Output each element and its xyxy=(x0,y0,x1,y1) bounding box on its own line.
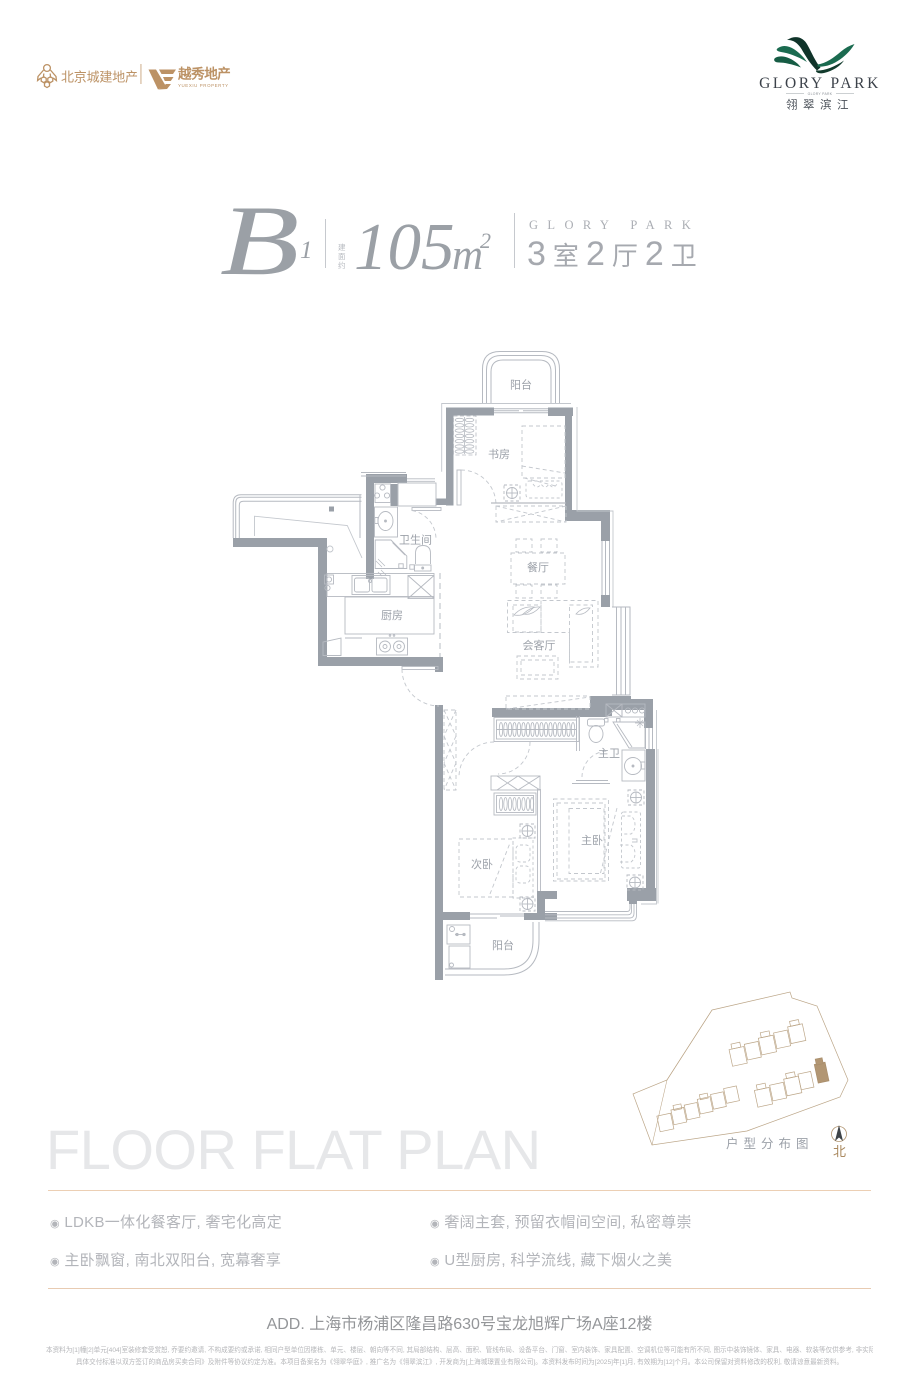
svg-text:GLORY PARK: GLORY PARK xyxy=(529,218,700,232)
svg-text:卫生间: 卫生间 xyxy=(399,533,432,547)
svg-text:会客厅: 会客厅 xyxy=(523,638,556,652)
svg-text:主卫: 主卫 xyxy=(598,747,620,760)
svg-text:B: B xyxy=(220,186,299,296)
svg-text:次卧: 次卧 xyxy=(471,857,493,871)
svg-text:阳台: 阳台 xyxy=(492,938,514,952)
svg-text:书房: 书房 xyxy=(488,448,510,461)
svg-text:餐厅: 餐厅 xyxy=(527,560,549,574)
svg-text:m: m xyxy=(452,232,483,279)
svg-text:阳台: 阳台 xyxy=(510,378,532,392)
svg-text:2: 2 xyxy=(480,228,491,253)
svg-text:约: 约 xyxy=(338,260,346,270)
svg-text:北: 北 xyxy=(833,1144,846,1159)
svg-text:户型分布图: 户型分布图 xyxy=(726,1136,814,1151)
svg-text:建: 建 xyxy=(338,242,346,252)
svg-text:主卧: 主卧 xyxy=(581,834,603,847)
svg-text:厨房: 厨房 xyxy=(381,609,403,622)
svg-text:面: 面 xyxy=(338,252,346,261)
svg-text:1: 1 xyxy=(300,237,313,264)
svg-text:3室2厅2卫: 3室2厅2卫 xyxy=(527,235,704,273)
svg-text:105: 105 xyxy=(354,210,455,284)
